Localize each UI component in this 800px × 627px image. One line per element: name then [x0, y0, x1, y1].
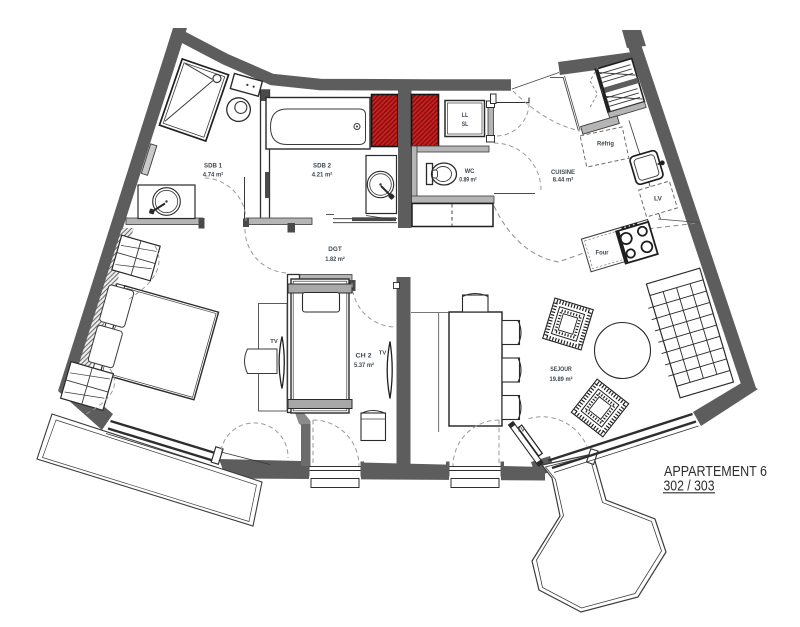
svg-text:SDB 1: SDB 1 — [204, 163, 222, 170]
svg-text:Réfrig: Réfrig — [597, 140, 614, 147]
svg-text:19.89 m²: 19.89 m² — [550, 376, 573, 383]
svg-text:TV: TV — [270, 339, 278, 345]
svg-text:5.37 m²: 5.37 m² — [354, 362, 374, 369]
svg-text:CH 2: CH 2 — [356, 353, 373, 360]
svg-text:0.89 m²: 0.89 m² — [459, 176, 477, 183]
svg-text:TV: TV — [517, 428, 525, 434]
svg-text:TV: TV — [379, 351, 387, 357]
svg-text:302 / 303: 302 / 303 — [664, 479, 715, 495]
svg-text:LV: LV — [654, 196, 663, 203]
svg-text:SL: SL — [462, 121, 469, 128]
svg-text:LL: LL — [462, 112, 469, 119]
svg-text:8.44 m²: 8.44 m² — [553, 176, 574, 183]
svg-text:4.74 m²: 4.74 m² — [203, 171, 224, 178]
svg-text:Four: Four — [596, 249, 610, 256]
svg-text:CUISINE: CUISINE — [551, 169, 575, 176]
svg-text:SDB 2: SDB 2 — [313, 163, 331, 170]
svg-text:4.21 m²: 4.21 m² — [312, 171, 333, 178]
svg-text:1.82 m²: 1.82 m² — [325, 256, 345, 263]
svg-text:WC: WC — [465, 168, 475, 175]
svg-text:DGT: DGT — [328, 246, 342, 253]
svg-text:SEJOUR: SEJOUR — [550, 366, 572, 373]
